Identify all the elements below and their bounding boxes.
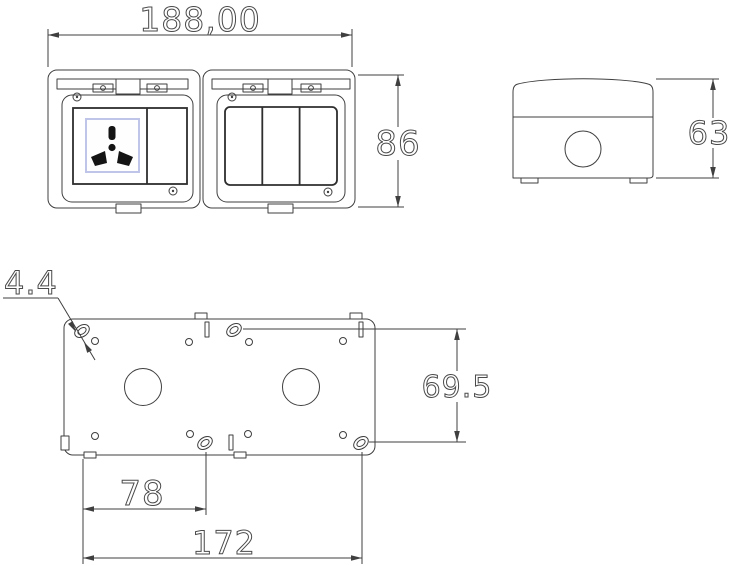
hinge-pin-icon	[155, 86, 160, 91]
socket-unit	[48, 70, 200, 213]
bottom-view: 4.4 69.5 78	[3, 264, 492, 564]
side-foot	[630, 178, 647, 183]
dimension-depth: 63	[656, 79, 730, 178]
cable-knockout	[125, 369, 162, 406]
dimension-mount-vertical: 69.5	[243, 329, 492, 442]
enclosure-technical-drawing: 188,00 86 63	[0, 0, 740, 566]
edge-tab	[84, 452, 96, 458]
bottom-latch-tab	[116, 204, 141, 213]
bottom-latch-tab	[268, 204, 293, 213]
side-body	[513, 79, 653, 178]
vent-slot	[229, 435, 233, 450]
dimension-overall-width: 188,00	[48, 0, 352, 67]
mounting-slot	[195, 434, 215, 452]
screw-icon	[169, 187, 177, 195]
dimension-mount-offset: 78	[83, 452, 206, 515]
switch-unit	[203, 70, 355, 213]
mounting-slot	[351, 434, 371, 452]
dim-label-slot-diameter: 4.4	[4, 264, 58, 302]
lid-latch-tab	[268, 79, 292, 94]
side-view: 63	[513, 79, 730, 183]
edge-tab	[195, 313, 207, 319]
screw-icon	[73, 93, 81, 101]
edge-tab	[350, 313, 362, 319]
switch-rockers	[225, 107, 337, 185]
mounting-slot	[224, 321, 244, 339]
lid-latch-tab	[116, 79, 140, 94]
hinge-pin-icon	[251, 86, 256, 91]
dim-label-overall-height: 86	[375, 124, 420, 164]
edge-notch	[61, 436, 69, 450]
vent-slot	[205, 322, 209, 337]
screw-icon	[324, 188, 332, 196]
hinge-pin-icon	[101, 86, 106, 91]
pilot-holes	[92, 338, 347, 440]
dim-label-mount-offset: 78	[119, 474, 164, 514]
dim-label-mount-horizontal: 172	[192, 524, 256, 562]
dim-label-depth: 63	[688, 114, 731, 152]
dimension-overall-height: 86	[358, 75, 421, 207]
side-foot	[521, 178, 538, 183]
front-view: 188,00 86	[48, 0, 421, 213]
technical-drawing-page: 188,00 86 63	[0, 0, 740, 566]
screw-icon	[228, 93, 236, 101]
base-plate	[64, 319, 375, 455]
dim-label-mount-vertical: 69.5	[422, 370, 493, 405]
side-knockout-hole	[565, 131, 601, 167]
edge-tab	[234, 452, 246, 458]
dim-label-overall-width: 188,00	[139, 0, 260, 39]
cable-knockout	[283, 369, 320, 406]
dimension-slot-diameter: 4.4	[3, 264, 95, 360]
hinge-pin-icon	[309, 86, 314, 91]
